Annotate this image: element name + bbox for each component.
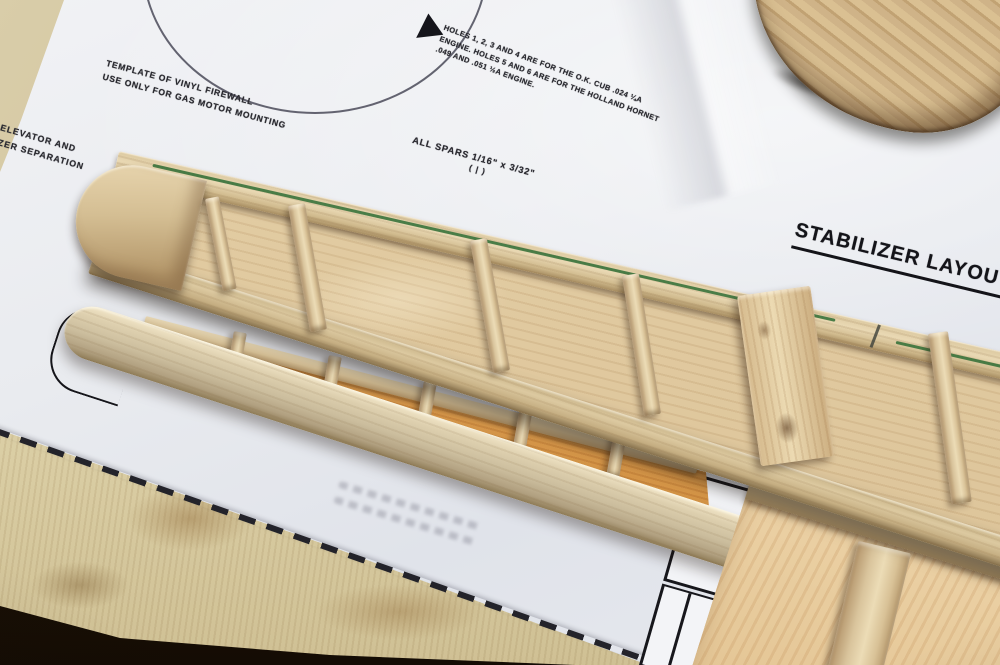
- lower-panel-root-rib: [810, 541, 911, 665]
- pencil-mark: [870, 324, 881, 347]
- photo-balsa-stabilizer-on-plan: HOLES 1, 2, 3 AND 4 ARE FOR THE O.K. CUB…: [0, 0, 1000, 665]
